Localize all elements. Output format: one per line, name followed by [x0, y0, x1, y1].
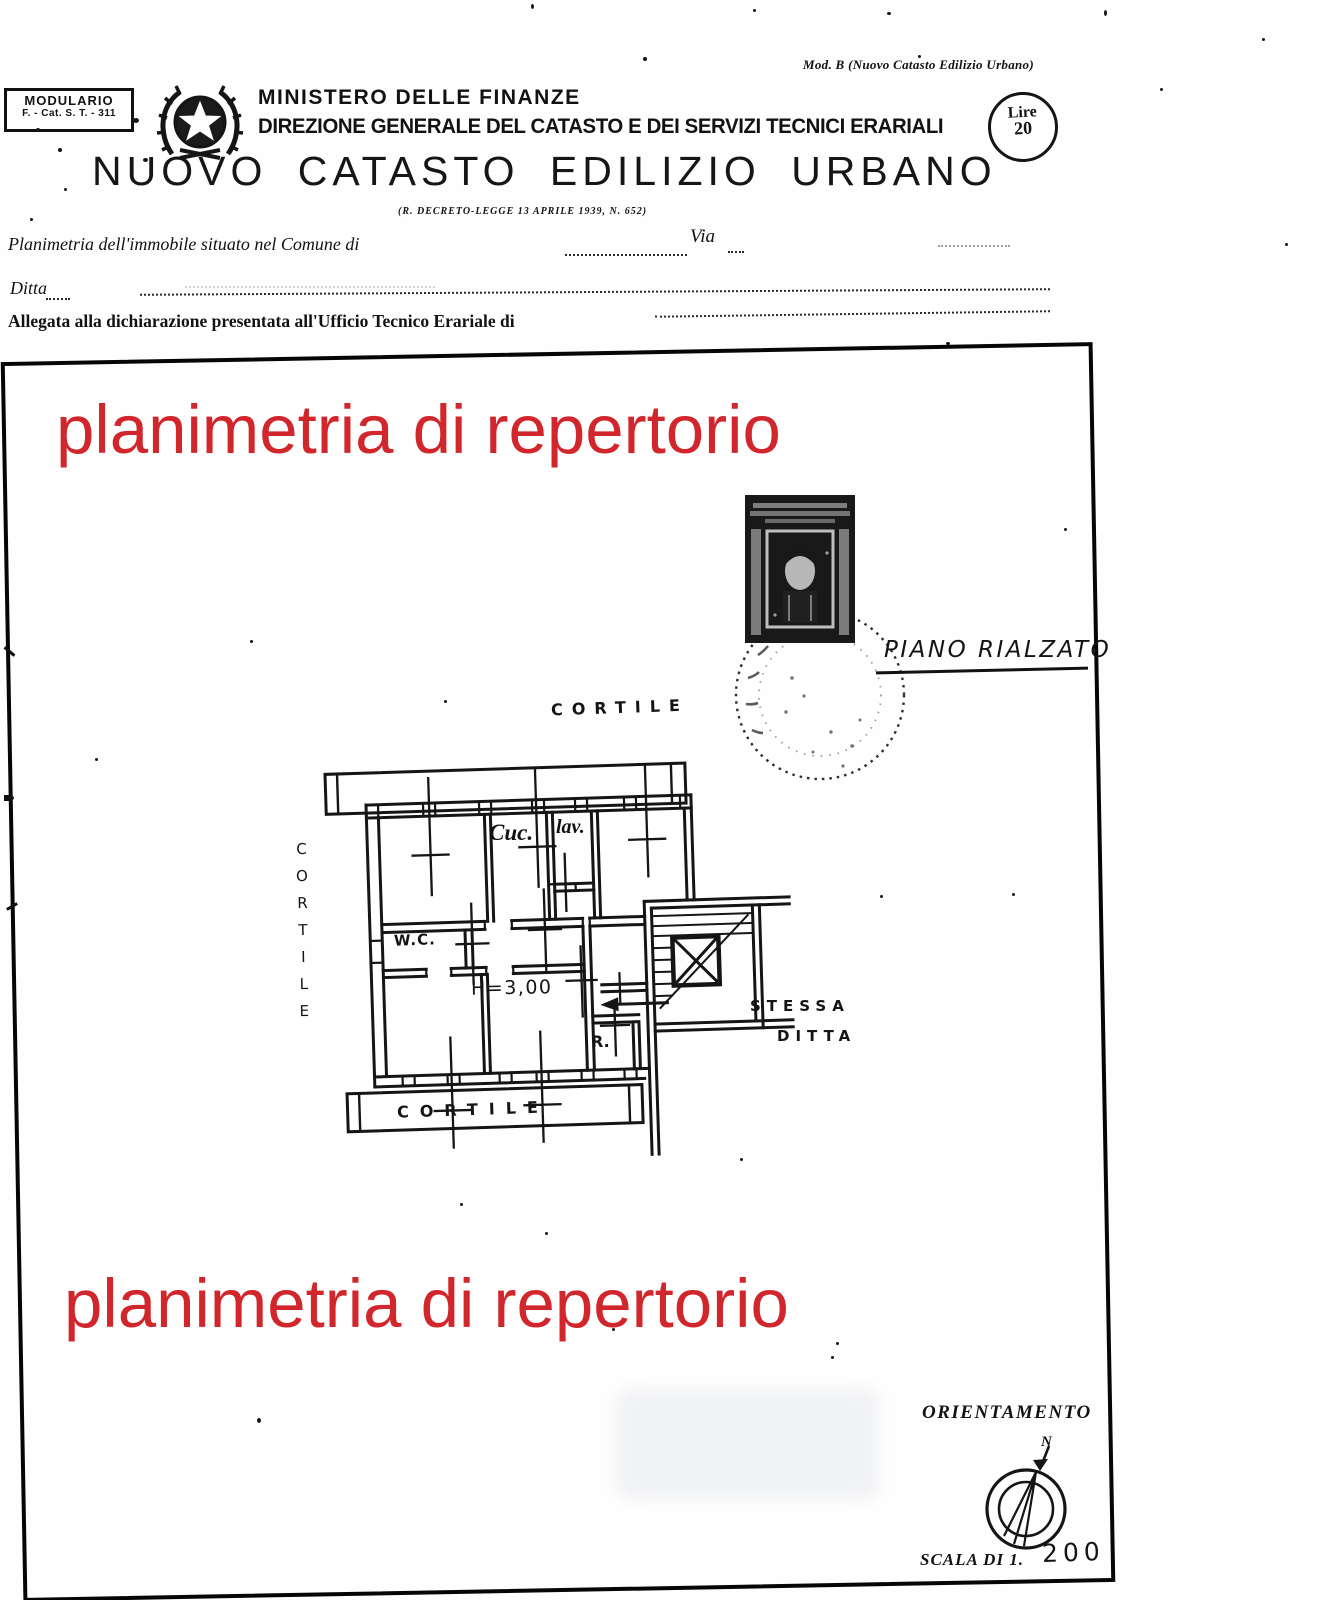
dotted-line-ditta-start [46, 296, 70, 300]
room-label-kitchen: Cuc. [489, 820, 533, 846]
ceiling-height-note: H=3,00 [471, 976, 553, 999]
dotted-line-via [728, 249, 744, 253]
document-title: NUOVO CATASTO EDILIZIO URBANO [92, 148, 997, 195]
room-label-r: R. [591, 1032, 610, 1051]
pencil-marks [185, 281, 435, 288]
dotted-line-comune [565, 252, 687, 256]
modulario-box: MODULARIO F. - Cat. S. T. - 311 [4, 88, 134, 132]
neighbor-note-line1: STESSA [750, 997, 850, 1015]
modulario-line1: MODULARIO [7, 93, 131, 108]
directorate-line: DIREZIONE GENERALE DEL CATASTO E DEI SER… [258, 115, 943, 139]
watermark-text-top: planimetria di repertorio [56, 390, 781, 469]
form-model-note: Mod. B (Nuovo Catasto Edilizio Urbano) [803, 57, 1034, 73]
ministry-line: MINISTERO DELLE FINANZE [258, 86, 581, 110]
revenue-stamp [745, 495, 855, 643]
floor-level-label: PIANO RIALZATO [884, 637, 1111, 663]
floor-plan-drawing [280, 680, 820, 1190]
room-label-wc: W.C. [394, 930, 436, 949]
decree-subtitle: (R. DECRETO-LEGGE 13 APRILE 1939, N. 652… [398, 206, 647, 217]
dotted-line-ufficio [655, 308, 1050, 318]
form-line-ufficio: Allegata alla dichiarazione presentata a… [8, 311, 515, 332]
form-label-via: Via [690, 226, 715, 248]
scale-value: 200 [1042, 1537, 1106, 1568]
watermark-text-bottom: planimetria di repertorio [64, 1264, 789, 1343]
courtyard-label-left: CORTILE [292, 840, 313, 1029]
cadastral-document-page: MODULARIO F. - Cat. S. T. - 311 MINISTER… [0, 0, 1328, 1600]
orientation-label: ORIENTAMENTO [922, 1402, 1092, 1424]
scale-label: SCALA DI 1. [920, 1550, 1024, 1570]
room-label-laundry: lav. [556, 816, 585, 839]
scan-smudge [615, 1388, 880, 1500]
neighbor-note-line2: DITTA [777, 1027, 856, 1045]
fee-value: 20 [991, 118, 1056, 138]
form-line-comune: Planimetria dell'immobile situato nel Co… [8, 234, 359, 255]
modulario-line2: F. - Cat. S. T. - 311 [7, 108, 131, 119]
fee-stamp-circle: Lire 20 [986, 90, 1060, 164]
dotted-line-via-right [938, 243, 1010, 247]
form-line-ditta: Ditta [10, 278, 47, 299]
